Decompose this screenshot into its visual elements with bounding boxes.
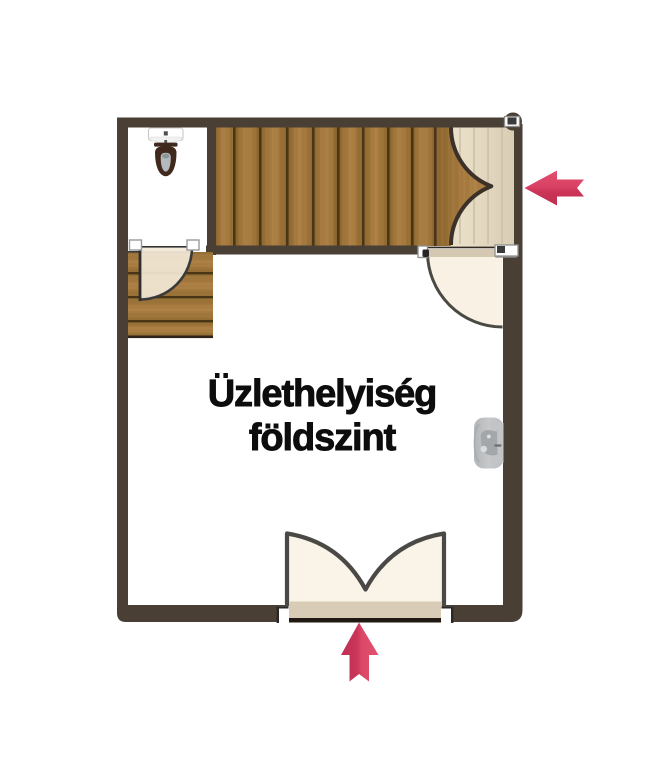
- svg-text:földszint: földszint: [249, 417, 397, 459]
- svg-text:Üzlethelyiség: Üzlethelyiség: [208, 372, 437, 415]
